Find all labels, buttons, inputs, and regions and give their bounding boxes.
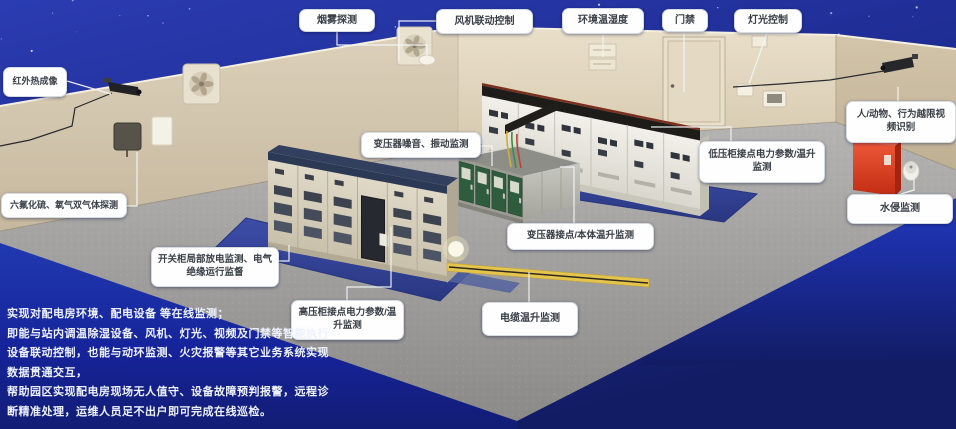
callout-label: 烟雾探测 <box>317 14 357 27</box>
description-text: 实现对配电房环境、配电设备 等在线监测； 即能与站内调温除湿设备、风机、灯光、视… <box>7 305 357 422</box>
callout-video-recognition[interactable]: 人/动物、行为越限视频识别 <box>846 101 956 143</box>
callout-transformer-noise-vibration[interactable]: 变压器噪音、振动监测 <box>361 132 481 158</box>
callout-env-temp-humidity[interactable]: 环境温湿度 <box>562 8 644 34</box>
callout-label: 六氟化硫、氧气双气体探测 <box>10 200 118 212</box>
room-door <box>663 37 725 126</box>
wall-box-left <box>152 117 172 145</box>
callout-sf6-o2-gas-detection[interactable]: 六氟化硫、氧气双气体探测 <box>1 193 127 218</box>
dome-light <box>443 236 469 262</box>
description-line: 帮助园区实现配电房现场无人值守、设备故障预判报警，远程诊 <box>7 383 357 403</box>
callout-label: 门禁 <box>675 14 695 27</box>
callout-label: 风机联动控制 <box>455 15 515 28</box>
callout-label: 环境温湿度 <box>578 14 628 27</box>
callout-fan-linkage-control[interactable]: 风机联动控制 <box>436 9 533 34</box>
wall-control-box <box>763 91 786 107</box>
callout-label: 人/动物、行为越限视频识别 <box>853 109 949 134</box>
smoke-detector-dome <box>419 55 435 65</box>
callout-cable-temp-rise[interactable]: 电缆温升监测 <box>482 302 578 336</box>
fire-extinguisher-cabinet <box>853 135 901 196</box>
callout-label: 低压柜接点电力参数/温升监测 <box>706 149 818 174</box>
callout-label: 变压器噪音、振动监测 <box>373 139 468 152</box>
callout-label: 灯光控制 <box>748 14 788 27</box>
callout-water-intrusion[interactable]: 水侵监测 <box>847 194 953 224</box>
callout-smoke-detection[interactable]: 烟雾探测 <box>299 9 375 32</box>
description-line: 即能与站内调温除湿设备、风机、灯光、视频及门禁等智能执行 <box>7 325 357 345</box>
callout-door-access[interactable]: 门禁 <box>662 9 708 32</box>
callout-switchgear-partial-discharge[interactable]: 开关柜局部放电监测、电气绝缘运行监督 <box>151 247 279 287</box>
description-line: 实现对配电房环境、配电设备 等在线监测； <box>7 305 357 325</box>
description-line: 数据贯通交互， <box>7 364 357 384</box>
callout-infrared-thermal-imaging[interactable]: 红外热成像 <box>3 67 67 97</box>
callout-label: 电缆温升监测 <box>500 312 560 325</box>
callout-label: 水侵监测 <box>880 202 920 215</box>
callout-label: 变压器接点/本体温升监测 <box>527 230 634 243</box>
callout-label: 开关柜局部放电监测、电气绝缘运行监督 <box>158 254 272 279</box>
description-line: 断精准处理，运维人员足不出户即可完成在线巡检。 <box>7 403 357 423</box>
exhaust-fan-left-icon <box>183 64 220 104</box>
callout-label: 红外热成像 <box>12 76 57 88</box>
callout-light-control[interactable]: 灯光控制 <box>734 9 802 33</box>
description-line: 设备联动控制，也能与动环监测、火灾报警等其它业务系统实现 <box>7 344 357 364</box>
callout-lv-cabinet-power-temp[interactable]: 低压柜接点电力参数/温升监测 <box>699 141 825 183</box>
distribution-room-diagram: 烟雾探测 风机联动控制 环境温湿度 门禁 灯光控制 红外热成像 六氟化硫、氧气双… <box>0 0 956 429</box>
callout-transformer-contact-temp[interactable]: 变压器接点/本体温升监测 <box>507 223 654 250</box>
water-sensor-device <box>903 162 919 181</box>
